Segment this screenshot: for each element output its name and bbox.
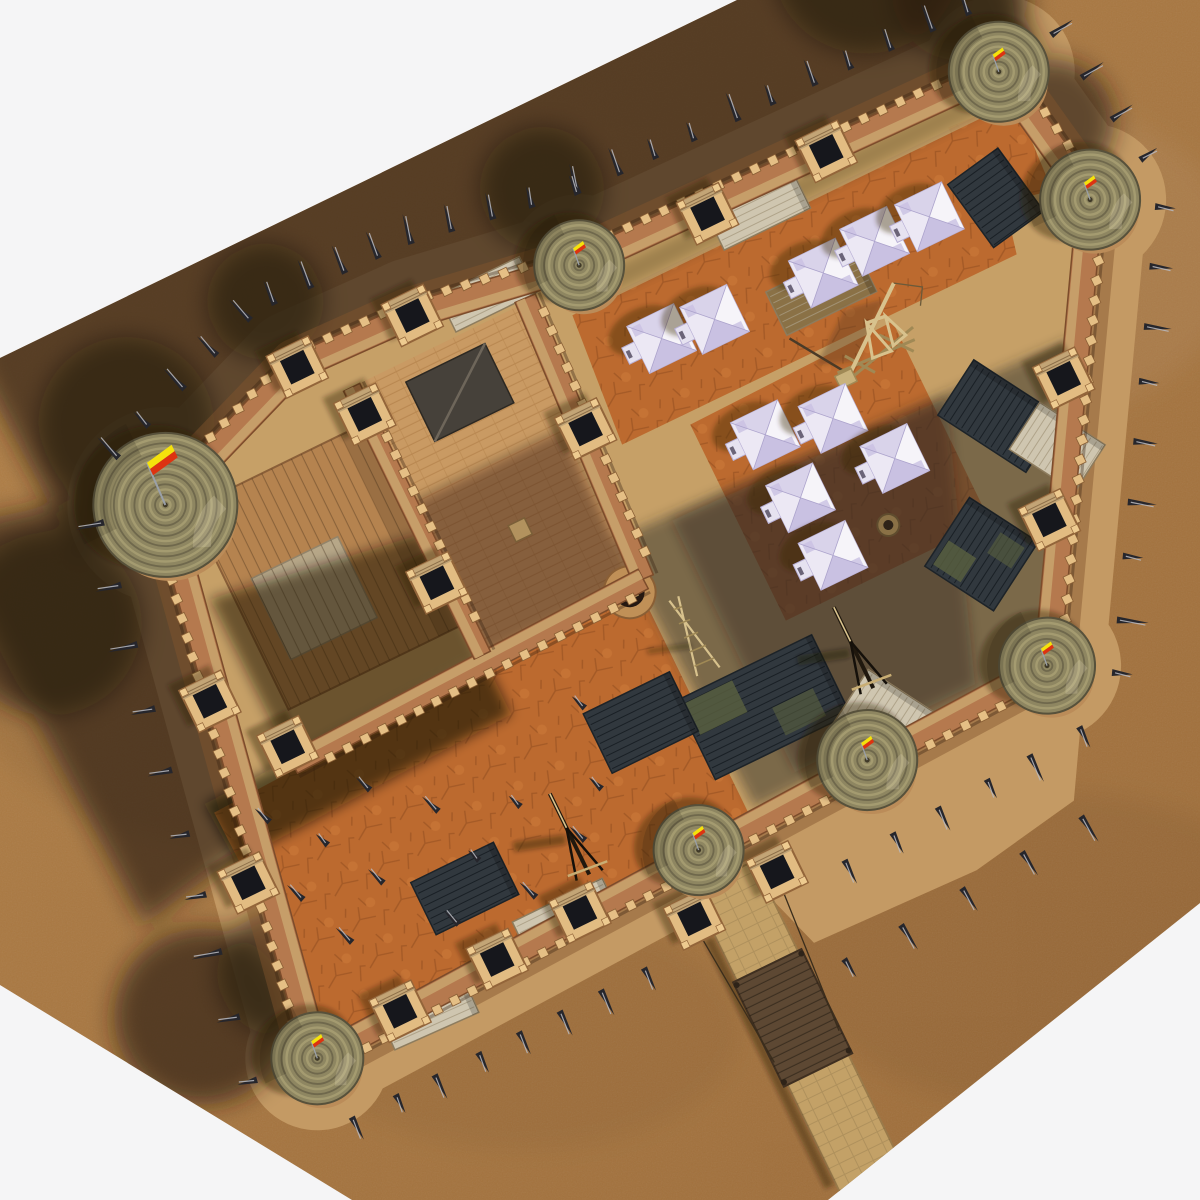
castle-aerial-render <box>0 0 1200 1200</box>
render-viewport <box>0 0 1200 1200</box>
